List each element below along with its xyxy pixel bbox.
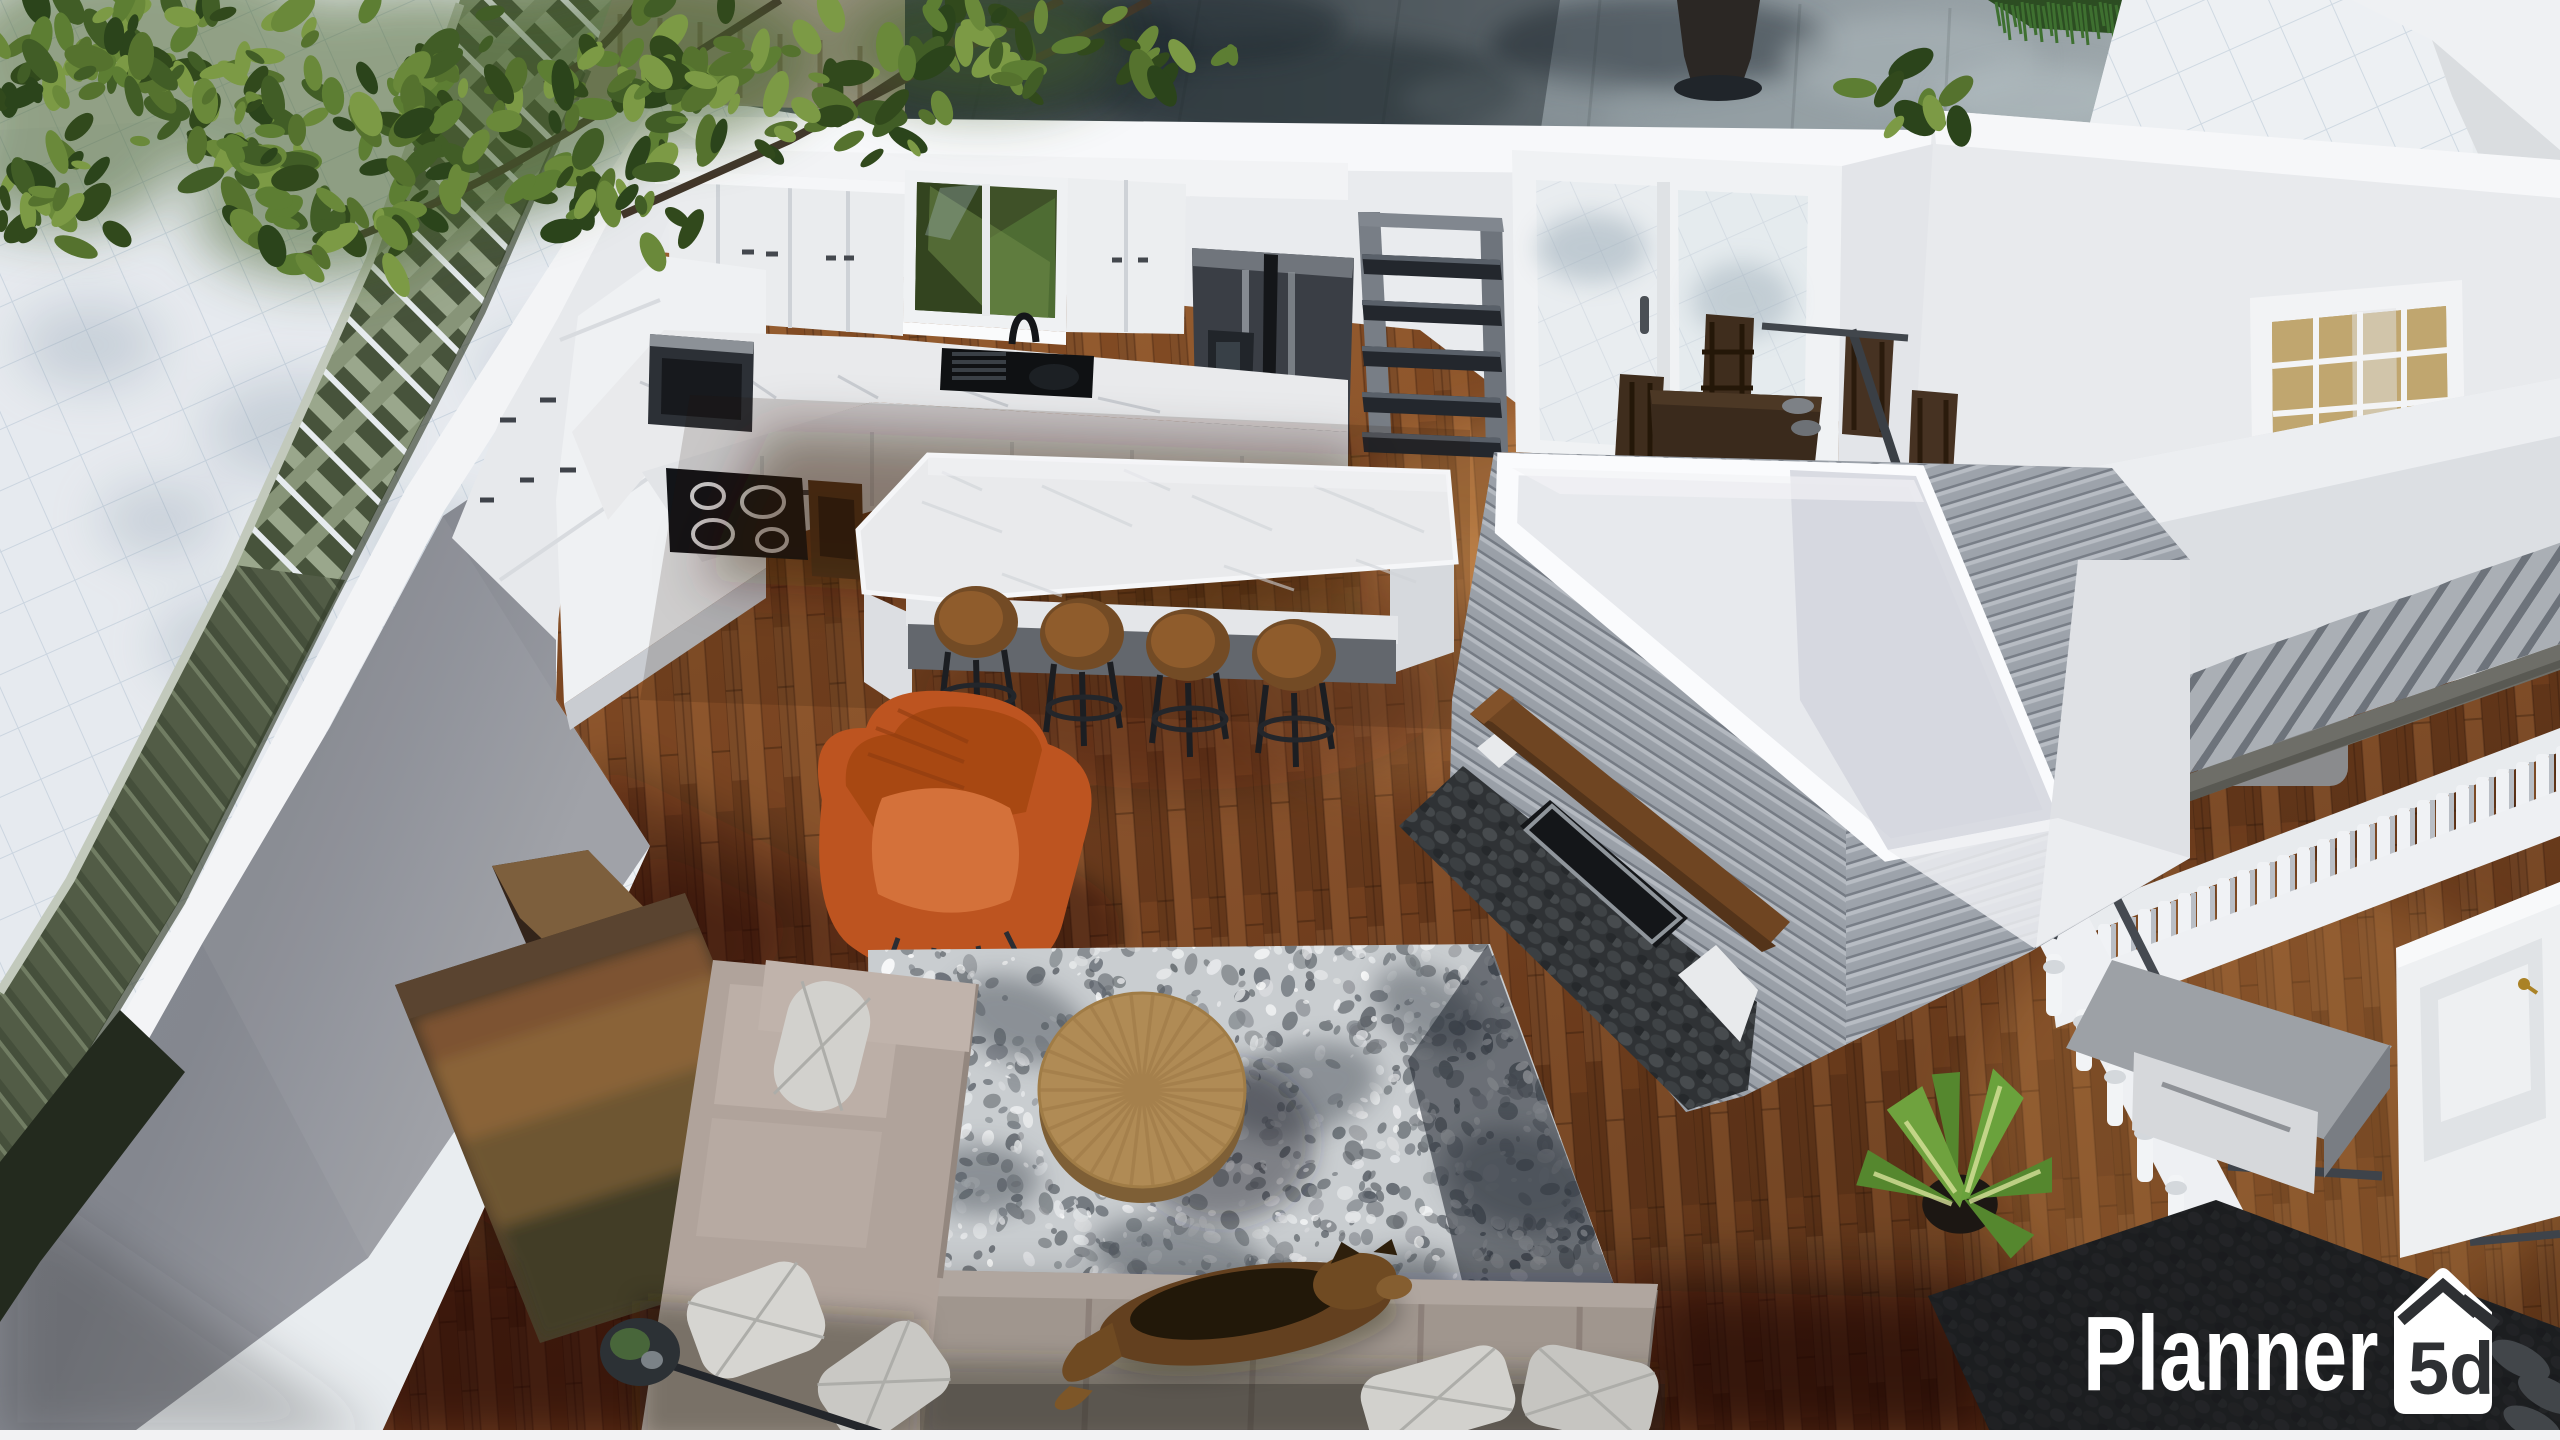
svg-text:Planner: Planner [2083,1294,2378,1412]
svg-text:5d: 5d [2408,1327,2494,1410]
